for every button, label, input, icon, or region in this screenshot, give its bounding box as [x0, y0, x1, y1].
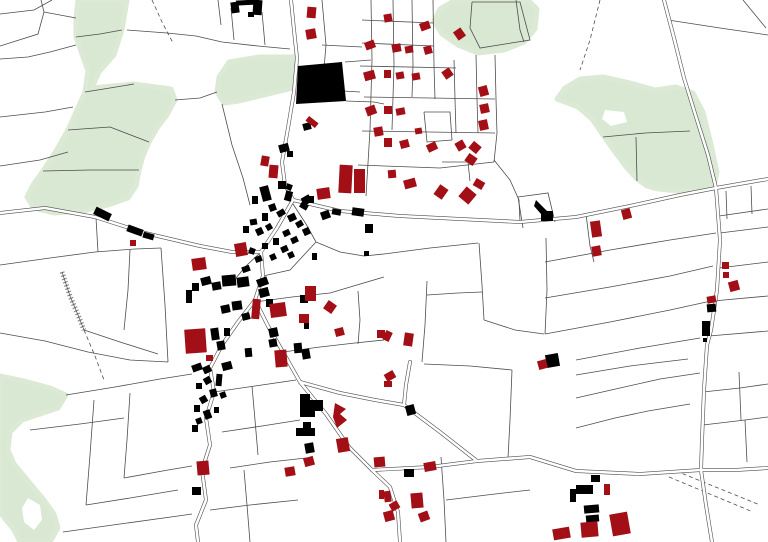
- building-red: [260, 155, 270, 166]
- building-black: [312, 253, 317, 260]
- building-red: [580, 521, 598, 537]
- building-black: [224, 328, 230, 336]
- building-red: [591, 245, 602, 256]
- building-red: [274, 350, 287, 368]
- building-black: [352, 207, 365, 217]
- building-red: [130, 240, 136, 246]
- building-black: [214, 407, 219, 413]
- building-black: [703, 338, 707, 342]
- building-red: [374, 457, 386, 468]
- building-red: [384, 381, 392, 387]
- building-black: [215, 374, 222, 386]
- building-black: [252, 196, 258, 204]
- building-red: [722, 262, 729, 269]
- building-red: [234, 242, 248, 257]
- building-red: [191, 257, 207, 271]
- building-red: [307, 7, 317, 19]
- building-black: [222, 274, 237, 286]
- building-black: [192, 283, 199, 291]
- building-red: [196, 461, 209, 476]
- building-black: [268, 327, 279, 338]
- building-red: [354, 169, 365, 193]
- building-black: [245, 348, 253, 358]
- building-red: [384, 106, 392, 114]
- building-black: [230, 1, 239, 13]
- building-black: [192, 425, 198, 432]
- building-red: [379, 490, 384, 499]
- building-red: [184, 328, 207, 353]
- building-black: [296, 62, 346, 104]
- building-black: [216, 340, 225, 350]
- building-black: [196, 383, 202, 389]
- building-black: [364, 251, 369, 256]
- building-black: [308, 196, 314, 203]
- building-black: [584, 504, 600, 513]
- building-black: [194, 405, 200, 412]
- building-black: [236, 276, 249, 288]
- building-black: [262, 213, 268, 221]
- building-black: [278, 181, 286, 189]
- building-red: [404, 45, 413, 53]
- building-black: [231, 300, 242, 310]
- building-black: [702, 321, 710, 336]
- building-red: [395, 71, 404, 79]
- building-black: [192, 487, 201, 495]
- building-red: [269, 302, 287, 318]
- building-black: [211, 281, 221, 290]
- building-black: [570, 489, 576, 502]
- building-black: [268, 338, 277, 347]
- building-red: [338, 165, 352, 194]
- building-black: [365, 224, 373, 233]
- building-red: [388, 170, 397, 179]
- building-red: [410, 493, 423, 509]
- building-red: [415, 127, 423, 134]
- building-red: [316, 187, 330, 200]
- building-red: [268, 165, 278, 179]
- map-viewport[interactable]: [0, 0, 768, 542]
- building-black: [304, 442, 315, 453]
- building-black: [262, 243, 268, 249]
- building-red: [723, 272, 729, 278]
- building-red: [206, 355, 213, 361]
- building-black: [248, 12, 254, 17]
- building-red: [604, 484, 610, 495]
- building-black: [250, 218, 258, 225]
- building-red: [391, 43, 401, 52]
- building-black: [304, 323, 309, 329]
- building-red: [299, 314, 309, 323]
- building-black: [707, 304, 717, 313]
- building-black: [591, 475, 600, 482]
- building-red: [384, 138, 392, 147]
- building-red: [609, 512, 631, 537]
- building-red: [411, 72, 420, 80]
- building-black: [287, 151, 293, 157]
- building-red: [479, 103, 490, 114]
- building-red: [384, 70, 391, 78]
- building-black: [210, 328, 220, 341]
- building-red: [336, 437, 350, 453]
- building-red: [373, 126, 383, 136]
- building-black: [576, 485, 593, 494]
- building-black: [243, 226, 249, 233]
- building-red: [403, 332, 414, 346]
- building-red: [305, 286, 316, 301]
- building-black: [301, 348, 311, 359]
- building-black: [273, 238, 279, 245]
- building-red: [284, 466, 295, 477]
- building-black: [404, 469, 414, 477]
- building-red: [383, 13, 392, 22]
- building-black: [186, 290, 192, 303]
- building-black: [294, 343, 303, 354]
- building-red: [305, 28, 317, 40]
- cadastral-map[interactable]: [0, 0, 768, 542]
